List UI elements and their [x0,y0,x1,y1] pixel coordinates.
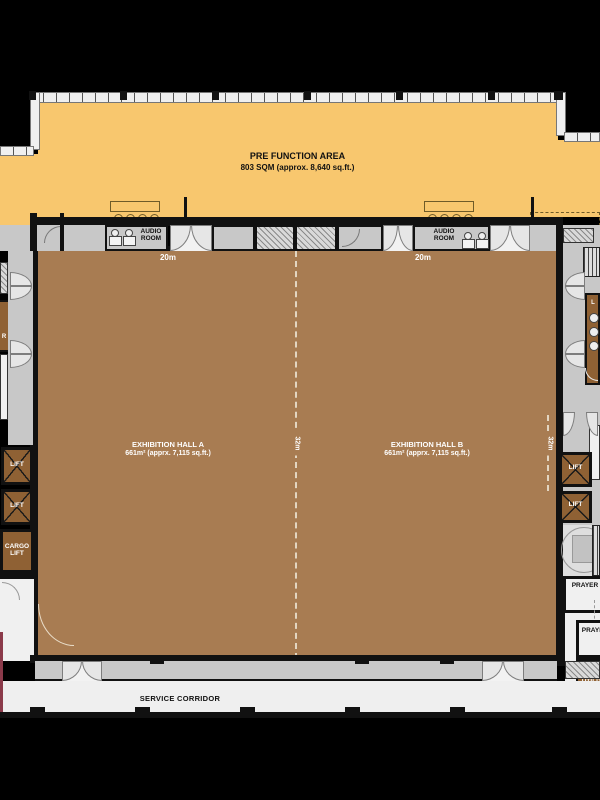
vestibule [530,225,557,251]
lift-left-1-label: LIFT [1,461,33,469]
wall-post [440,657,454,664]
double-door [383,225,413,251]
pre-function-area-label: 803 SQM (approx. 8,640 sq.ft.) [180,163,415,173]
chair [478,232,486,240]
hall-a-width-dim: 20m [128,253,208,263]
column-stub [240,707,255,716]
toilet-fixture [589,327,599,337]
glazed-facade-left-return [30,92,40,150]
glazed-facade-top [30,92,560,103]
wall-post [293,225,297,251]
column [304,91,311,100]
column-stub [135,707,150,716]
toilet-fixture [589,313,599,323]
table [110,201,160,212]
column-stub [345,707,360,716]
pre-function-area-right-wing [556,140,600,217]
lift-right-2-label: LIFT [559,501,592,509]
double-door [10,272,32,300]
column-stub [30,707,45,716]
hall-b-depth-dim: 32m [547,432,554,456]
prayer-room-f-label: PRAYER ROOM (F) [566,582,600,590]
left-edge-room-label: R [0,334,8,341]
glazed-facade-right-notch [564,132,600,142]
staircase-right-top [583,247,600,277]
prayer-room-2-label: PRAYER ROOM [579,627,600,635]
hall-b-width-dim: 20m [383,253,463,263]
double-door [490,225,530,251]
column [488,91,495,100]
left-edge-stalls [0,354,8,420]
roller-shutter-bottom-right [565,661,600,679]
column [212,91,219,100]
service-corridor-label: SERVICE CORRIDOR [110,694,250,703]
stair-flight [592,525,600,576]
vestibule [212,225,255,251]
audio-room-2-label: AUDIO ROOM [427,228,461,242]
audio-room-1-label: AUDIO ROOM [134,228,168,242]
double-door [10,340,32,368]
hall-b-area: 661m² (apprx. 7,115 sq.ft.) [347,450,507,458]
desk [462,239,475,249]
lift-right-1-label: LIFT [559,464,592,472]
column [396,91,403,100]
prayer-room-2 [576,620,600,658]
chair [111,229,119,237]
table [424,201,474,212]
accent-edge-line [0,632,3,715]
lift-left-2-label: LIFT [1,502,33,510]
hall-a-name: EXHIBITION HALL A [88,440,248,449]
roller-shutter-left [0,262,8,294]
desk [109,236,122,246]
hall-a-area: 661m² (apprx. 7,115 sq.ft.) [88,450,248,458]
toilet-fixture [589,341,599,351]
wall-post [355,657,369,664]
ladies-room-label: L [586,300,600,307]
double-door [565,272,585,300]
double-door [482,661,524,681]
hall-a-depth-dim: 32m [294,432,301,456]
chair [464,232,472,240]
column [120,91,127,100]
glazed-facade-left-notch [0,146,34,156]
wall-post [30,213,37,251]
chair [125,229,133,237]
cargo-lift-label: CARGO LIFT [0,543,34,558]
column-stub [552,707,567,716]
wall-post [60,213,64,251]
desk [476,239,489,249]
hall-b-name: EXHIBITION HALL B [347,440,507,449]
roller-shutter-right-top [563,228,594,243]
wall-post [150,657,164,664]
column-stub [450,707,465,716]
pre-function-title: PRE FUNCTION AREA [180,151,415,162]
column [29,91,36,100]
footer-black-band [0,718,600,800]
vestibule-bottom [35,661,557,681]
floor-plan: PRE FUNCTION AREA 803 SQM (approx. 8,640… [0,0,600,800]
service-corridor [0,681,600,712]
double-door [170,225,212,251]
double-door [62,661,102,681]
wall-hall-right [556,225,563,665]
column [554,91,563,100]
double-door [565,340,585,368]
left-edge-room [0,300,8,352]
